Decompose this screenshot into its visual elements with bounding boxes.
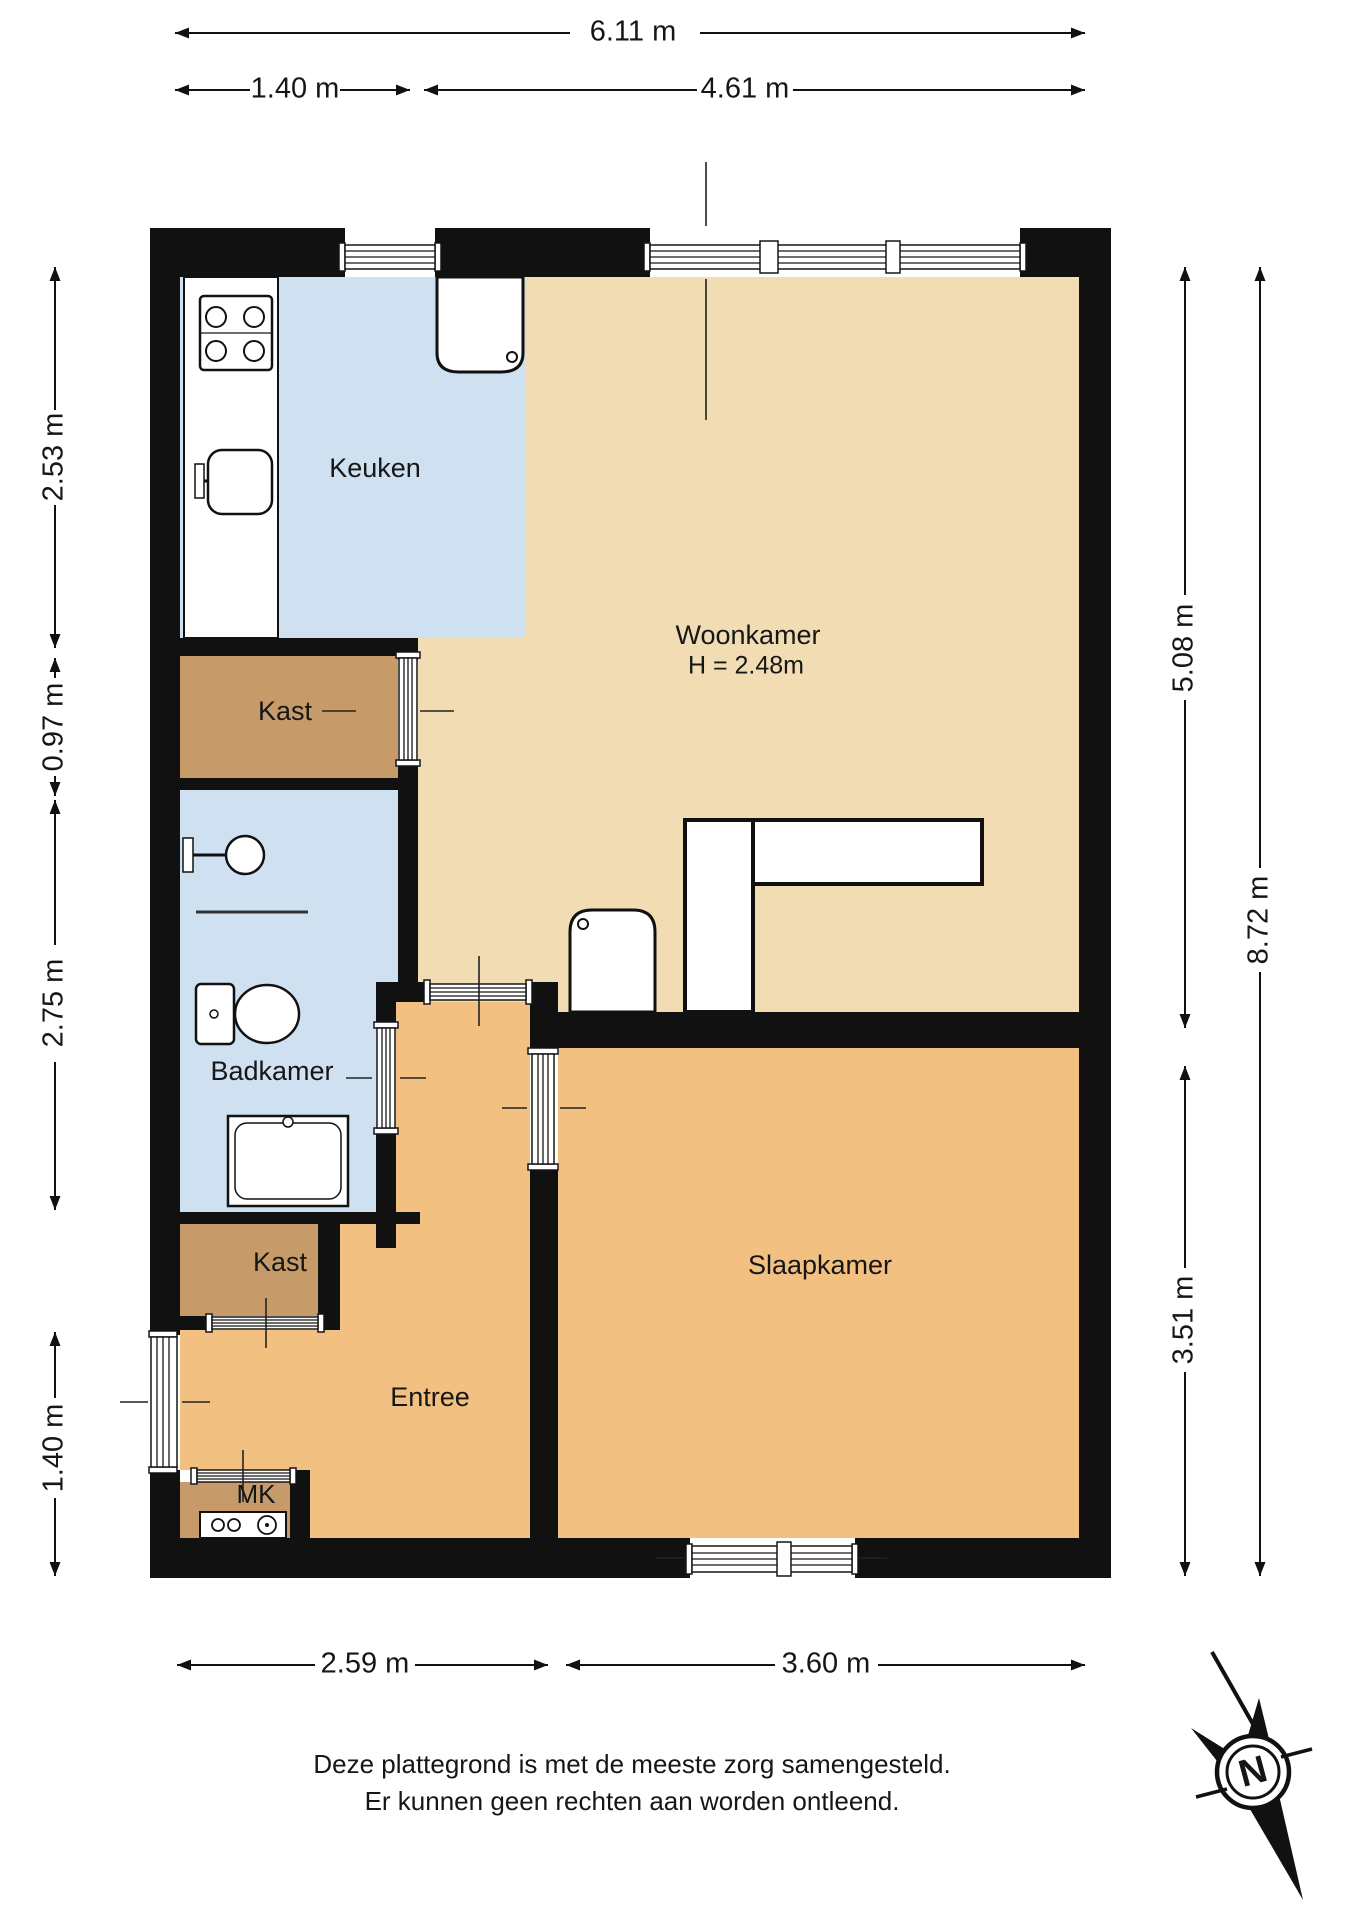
- wall-keuken-kast: [180, 638, 411, 656]
- dim-left-entree: 1.40 m: [38, 1404, 70, 1493]
- room-floors: [180, 277, 1079, 1538]
- door-kast-boven-icon: [396, 652, 420, 766]
- dim-bottom-left: 2.59 m: [321, 1648, 410, 1680]
- woonkamer-label: Woonkamer: [675, 620, 820, 650]
- wall-woonkamer-entree-left: [376, 982, 424, 1002]
- door-woonkamer-entree-icon: [424, 980, 532, 1004]
- wall-woonkamer-slaapkamer: [536, 1012, 1079, 1048]
- woonkamer-height-note: H = 2.48m: [688, 652, 804, 680]
- disclaimer-line1: Deze plattegrond is met de meeste zorg s…: [313, 1749, 950, 1779]
- kast-boven-label: Kast: [258, 696, 313, 726]
- boiler-woonkamer-icon: [570, 910, 655, 1012]
- floor-plan: Keuken Woonkamer H = 2.48m Kast Badkamer…: [0, 0, 1358, 1920]
- wall-right: [1079, 228, 1111, 1578]
- wall-bottom-left: [150, 1538, 690, 1578]
- wall-kast-badkamer: [180, 778, 418, 790]
- dim-top-left: 1.40 m: [251, 73, 340, 105]
- disclaimer-line2: Er kunnen geen rechten aan worden ontlee…: [365, 1786, 900, 1816]
- slaapkamer-floor: [558, 1048, 1079, 1538]
- wall-kast-onder-door-right: [324, 1316, 340, 1330]
- kast-onder-label: Kast: [253, 1247, 308, 1277]
- wall-corridor-stub: [376, 1212, 396, 1248]
- dim-right-total: 8.72 m: [1243, 876, 1275, 965]
- wall-entree-slaapkamer-bottom: [530, 1164, 558, 1538]
- disclaimer: Deze plattegrond is met de meeste zorg s…: [313, 1749, 950, 1816]
- meterkast-label: MK: [237, 1479, 277, 1509]
- door-slaapkamer-icon: [528, 1048, 558, 1170]
- badkamer-label: Badkamer: [210, 1056, 333, 1086]
- stove-icon: [200, 296, 272, 370]
- wall-bottom-right: [855, 1538, 1111, 1578]
- window-woonkamer-icon: [644, 228, 1026, 277]
- dim-left-kast: 0.97 m: [38, 683, 70, 772]
- wall-left-upper: [150, 228, 180, 1335]
- boiler-keuken-icon: [437, 277, 523, 372]
- door-kast-onder-icon: [206, 1314, 324, 1332]
- floor-plan-page: Keuken Woonkamer H = 2.48m Kast Badkamer…: [0, 0, 1358, 1920]
- wall-top-2: [435, 228, 650, 277]
- dim-right-woonkamer: 5.08 m: [1168, 604, 1200, 693]
- bathtub-icon: [228, 1116, 348, 1206]
- wall-badkamer-door-bottom: [376, 1128, 396, 1212]
- entree-label: Entree: [390, 1382, 470, 1412]
- dim-left-keuken: 2.53 m: [38, 413, 70, 502]
- door-badkamer-icon: [374, 1022, 398, 1134]
- dim-top-right: 4.61 m: [701, 73, 790, 105]
- meter-box-icon: [200, 1512, 286, 1538]
- wall-kast-onder-door-left: [180, 1316, 206, 1330]
- dim-left-badkamer: 2.75 m: [38, 959, 70, 1048]
- keuken-label: Keuken: [329, 453, 421, 483]
- wall-top-1: [150, 228, 345, 277]
- wall-badkamer-right: [398, 790, 418, 982]
- toilet-icon: [196, 984, 299, 1044]
- entrance-door-icon: [149, 1331, 180, 1473]
- north-arrow-icon: N: [1191, 1652, 1312, 1900]
- wall-left-lower: [150, 1470, 180, 1538]
- dim-top-total: 6.11 m: [590, 16, 677, 48]
- window-slaapkamer-icon: [686, 1538, 858, 1578]
- slaapkamer-label: Slaapkamer: [748, 1250, 892, 1280]
- dim-bottom-right: 3.60 m: [782, 1648, 871, 1680]
- window-keuken-icon: [339, 228, 441, 277]
- dim-right-slaapkamer: 3.51 m: [1168, 1276, 1200, 1365]
